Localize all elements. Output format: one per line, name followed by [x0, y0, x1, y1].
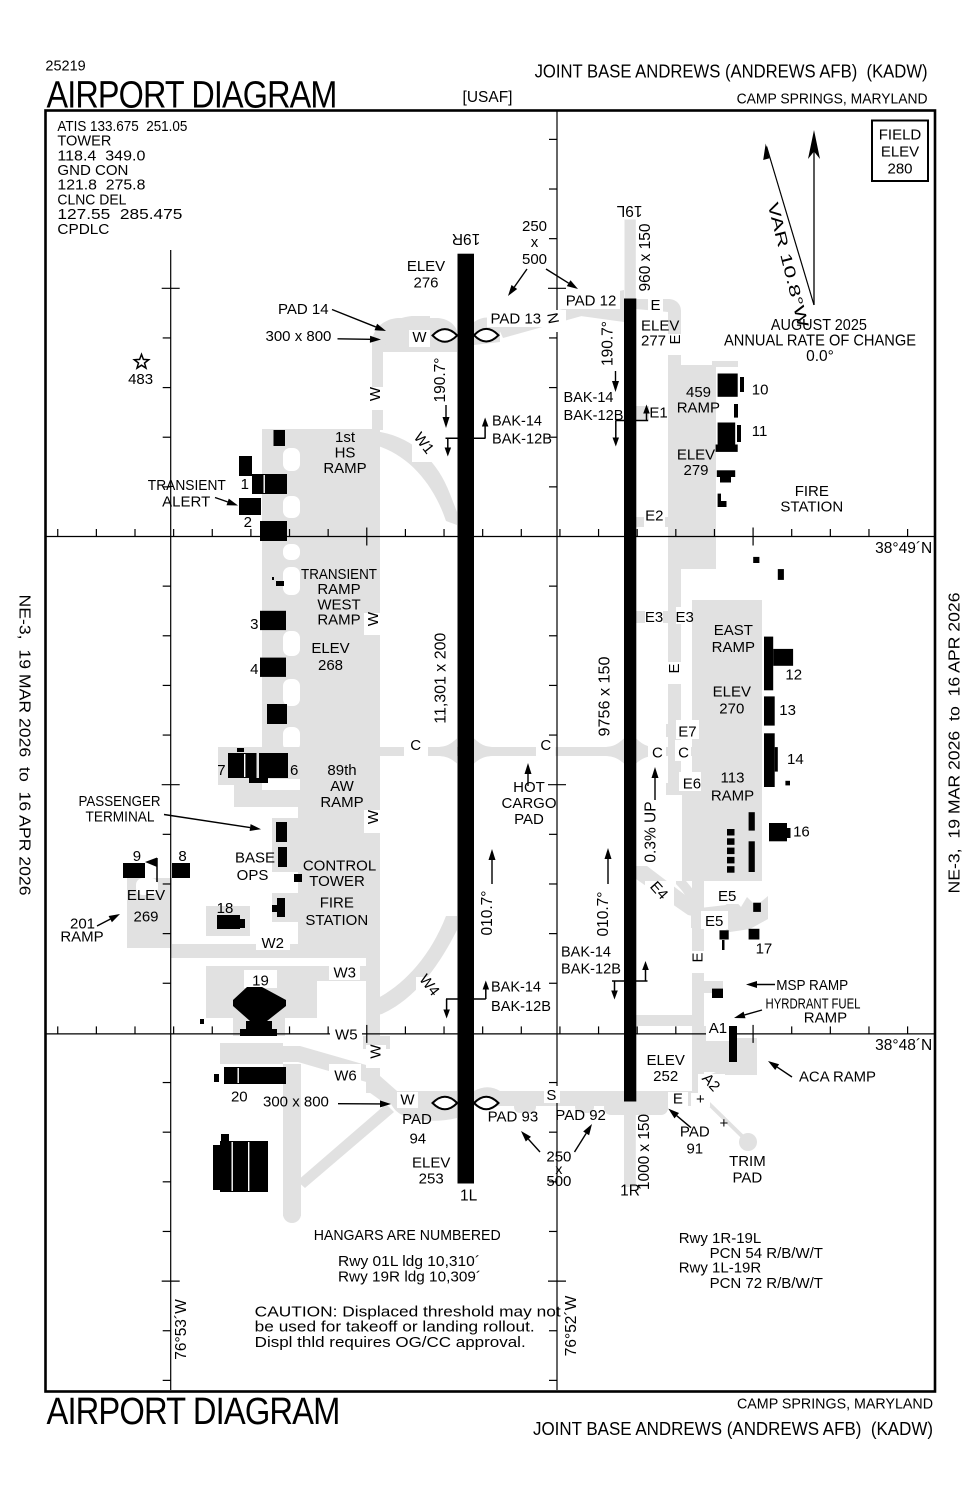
svg-text:17: 17 [756, 940, 773, 957]
svg-text:NE-3, 19 MAR 2026 to 16 APR: NE-3, 19 MAR 2026 to 16 APR 2026 [16, 595, 33, 896]
svg-text:GND CON: GND CON [57, 163, 128, 179]
svg-text:MSP RAMP: MSP RAMP [776, 977, 848, 994]
svg-text:x: x [531, 234, 539, 251]
svg-text:94: 94 [409, 1130, 426, 1147]
svg-text:13: 13 [779, 702, 796, 719]
svg-text:W: W [412, 329, 427, 346]
svg-text:279: 279 [683, 462, 708, 479]
svg-text:PAD: PAD [402, 1111, 432, 1128]
svg-text:19R: 19R [452, 230, 480, 247]
svg-text:HANGARS ARE NUMBERED: HANGARS ARE NUMBERED [314, 1227, 501, 1244]
svg-text:16: 16 [793, 824, 810, 841]
svg-text:FIRE: FIRE [320, 894, 354, 911]
svg-text:118.4 349.0: 118.4 349.0 [57, 148, 145, 164]
svg-text:OPS: OPS [237, 867, 269, 884]
svg-text:E7: E7 [678, 723, 696, 740]
svg-text:RAMP: RAMP [677, 400, 720, 417]
svg-text:CARGO: CARGO [501, 795, 556, 812]
svg-text:89th: 89th [327, 762, 356, 779]
svg-text:11: 11 [752, 423, 768, 440]
svg-text:277: 277 [641, 332, 666, 349]
svg-text:190.7°: 190.7° [432, 358, 449, 403]
svg-text:91: 91 [686, 1141, 703, 1158]
svg-text:300 x 800: 300 x 800 [263, 1093, 329, 1110]
svg-text:0.0°: 0.0° [806, 348, 834, 365]
svg-text:A1: A1 [709, 1020, 727, 1037]
svg-text:TERMINAL: TERMINAL [86, 808, 155, 825]
svg-text:9756 x 150: 9756 x 150 [597, 656, 614, 736]
svg-text:190.7°: 190.7° [600, 321, 617, 366]
svg-text:1: 1 [241, 476, 249, 493]
svg-text:BAK-12B: BAK-12B [564, 407, 624, 424]
svg-text:RAMP: RAMP [60, 929, 103, 946]
svg-text:BAK-14: BAK-14 [564, 389, 614, 406]
svg-text:ELEV: ELEV [677, 446, 715, 463]
svg-text:BAK-14: BAK-14 [561, 943, 611, 960]
svg-text:76°52´W: 76°52´W [563, 1295, 580, 1356]
svg-text:PAD 12: PAD 12 [566, 293, 617, 310]
svg-text:BASE: BASE [235, 850, 275, 867]
svg-text:Rwy 1L-19R: Rwy 1L-19R [679, 1260, 762, 1277]
svg-text:ATIS 133.675 251.05: ATIS 133.675 251.05 [57, 119, 187, 135]
svg-text:1000 x 150: 1000 x 150 [636, 1114, 653, 1190]
svg-text:RAMP: RAMP [804, 1009, 847, 1026]
svg-text:250: 250 [522, 218, 547, 235]
svg-text:E: E [666, 663, 683, 673]
svg-text:11,301 x 200: 11,301 x 200 [433, 632, 450, 723]
svg-text:W5: W5 [335, 1026, 358, 1043]
svg-text:RAMP: RAMP [320, 794, 363, 811]
svg-text:269: 269 [133, 909, 158, 926]
svg-text:CPDLC: CPDLC [57, 222, 109, 238]
svg-text:+: + [696, 1091, 705, 1108]
svg-text:10: 10 [752, 381, 769, 398]
svg-text:E: E [673, 1090, 683, 1107]
svg-text:280: 280 [887, 161, 912, 178]
svg-text:+: + [720, 1115, 729, 1132]
svg-text:12: 12 [785, 667, 802, 684]
svg-text:BAK-12B: BAK-12B [491, 998, 551, 1015]
svg-text:BAK-14: BAK-14 [491, 979, 541, 996]
svg-text:RAMP: RAMP [317, 581, 360, 598]
svg-text:AIRPORT DIAGRAM: AIRPORT DIAGRAM [47, 1391, 340, 1433]
svg-text:C: C [540, 737, 551, 754]
svg-text:W: W [368, 1044, 385, 1059]
svg-text:38°48´N: 38°48´N [875, 1037, 932, 1054]
svg-text:CAMP SPRINGS, MARYLAND: CAMP SPRINGS, MARYLAND [737, 1395, 933, 1412]
svg-text:CLNC DEL: CLNC DEL [57, 192, 126, 208]
svg-text:HS: HS [335, 445, 356, 462]
svg-text:C: C [678, 745, 689, 762]
svg-text:RAMP: RAMP [711, 788, 754, 805]
svg-text:PAD: PAD [733, 1169, 763, 1186]
svg-text:JOINT BASE ANDREWS (ANDREWS AF: JOINT BASE ANDREWS (ANDREWS AFB) (KADW) [535, 61, 928, 81]
svg-text:BAK-14: BAK-14 [492, 413, 542, 430]
svg-text:TRANSIENT: TRANSIENT [148, 477, 226, 494]
svg-text:76°53´W: 76°53´W [173, 1299, 190, 1360]
svg-text:Rwy 19R ldg 10,309´: Rwy 19R ldg 10,309´ [338, 1268, 481, 1285]
svg-text:121.8 275.8: 121.8 275.8 [57, 178, 145, 194]
svg-text:268: 268 [318, 657, 343, 674]
svg-text:CONTROL: CONTROL [303, 858, 376, 875]
svg-text:Displ thld requires OG/CC appr: Displ thld requires OG/CC approval. [255, 1334, 526, 1351]
svg-text:25219: 25219 [45, 59, 85, 75]
svg-text:PAD 93: PAD 93 [488, 1108, 539, 1125]
svg-text:252: 252 [653, 1068, 678, 1085]
svg-text:010.7°: 010.7° [479, 891, 496, 936]
svg-text:PAD 92: PAD 92 [555, 1107, 606, 1124]
svg-text:127.55 285.475: 127.55 285.475 [57, 207, 182, 223]
svg-text:ELEV: ELEV [311, 640, 349, 657]
svg-text:E1: E1 [649, 405, 667, 422]
svg-text:E: E [690, 952, 707, 962]
svg-text:EAST: EAST [714, 622, 753, 639]
svg-text:270: 270 [719, 700, 744, 717]
svg-text:PAD: PAD [514, 811, 544, 828]
svg-text:253: 253 [419, 1170, 444, 1187]
svg-text:PAD 13: PAD 13 [491, 311, 542, 328]
svg-text:38°49´N: 38°49´N [875, 540, 932, 557]
svg-text:276: 276 [413, 275, 438, 292]
svg-text:HOT: HOT [513, 779, 545, 796]
svg-text:[USAF]: [USAF] [463, 89, 513, 106]
svg-text:PAD 14: PAD 14 [278, 301, 329, 318]
svg-text:500: 500 [546, 1173, 571, 1190]
svg-text:ELEV: ELEV [412, 1155, 450, 1172]
svg-text:RAMP: RAMP [323, 460, 366, 477]
svg-text:1L: 1L [460, 1188, 478, 1205]
svg-text:BAK-12B: BAK-12B [561, 960, 621, 977]
svg-text:W6: W6 [334, 1067, 357, 1084]
svg-text:PASSENGER: PASSENGER [79, 793, 161, 810]
svg-text:E6: E6 [683, 776, 701, 793]
svg-text:300 x 800: 300 x 800 [266, 328, 332, 345]
svg-text:W: W [400, 1092, 415, 1109]
svg-text:W: W [365, 809, 382, 824]
svg-text:PAD: PAD [680, 1123, 710, 1140]
svg-text:ANNUAL RATE OF CHANGE: ANNUAL RATE OF CHANGE [724, 333, 916, 350]
svg-text:ELEV: ELEV [407, 258, 445, 275]
svg-text:4: 4 [250, 661, 258, 678]
svg-text:C: C [652, 745, 663, 762]
svg-text:STATION: STATION [305, 912, 368, 929]
svg-text:AUGUST 2025: AUGUST 2025 [771, 317, 867, 334]
svg-text:CAMP SPRINGS, MARYLAND: CAMP SPRINGS, MARYLAND [737, 91, 928, 108]
svg-text:FIELD: FIELD [879, 127, 922, 144]
svg-text:TRIM: TRIM [729, 1153, 766, 1170]
svg-text:459: 459 [686, 384, 711, 401]
svg-text:W2: W2 [261, 935, 284, 952]
svg-text:ACA RAMP: ACA RAMP [799, 1069, 876, 1086]
svg-text:20: 20 [231, 1088, 248, 1105]
svg-text:19L: 19L [616, 202, 642, 219]
svg-text:AW: AW [330, 778, 354, 795]
svg-text:E: E [650, 297, 660, 314]
svg-text:ELEV: ELEV [647, 1052, 685, 1069]
svg-text:W3: W3 [333, 964, 356, 981]
svg-text:ELEV: ELEV [127, 887, 165, 904]
svg-text:W: W [365, 611, 382, 626]
svg-text:S: S [546, 1087, 556, 1104]
svg-text:960 x 150: 960 x 150 [637, 223, 654, 291]
svg-text:483: 483 [128, 371, 153, 388]
svg-text:BAK-12B: BAK-12B [492, 431, 552, 448]
svg-text:E: E [667, 334, 684, 344]
svg-text:E5: E5 [718, 888, 736, 905]
svg-text:ALERT: ALERT [162, 493, 210, 510]
svg-text:14: 14 [787, 751, 804, 768]
svg-text:0.3% UP: 0.3% UP [643, 801, 660, 862]
svg-text:JOINT BASE ANDREWS (ANDREWS AF: JOINT BASE ANDREWS (ANDREWS AFB) (KADW) [533, 1419, 933, 1439]
svg-text:18: 18 [217, 900, 234, 917]
svg-text:3: 3 [250, 616, 258, 633]
svg-text:RAMP: RAMP [317, 612, 360, 629]
svg-text:500: 500 [522, 251, 547, 268]
svg-text:W: W [367, 386, 384, 401]
svg-text:E2: E2 [645, 508, 663, 525]
svg-text:6: 6 [290, 762, 298, 779]
svg-text:TOWER: TOWER [57, 134, 111, 150]
svg-text:E3: E3 [676, 609, 694, 626]
svg-text:RAMP: RAMP [712, 639, 755, 656]
svg-text:8: 8 [178, 848, 186, 865]
svg-text:NE-3, 19 MAR 2026 to 16 APR: NE-3, 19 MAR 2026 to 16 APR 2026 [947, 592, 964, 893]
svg-text:STATION: STATION [780, 499, 843, 516]
svg-text:1st: 1st [335, 429, 356, 446]
svg-text:ELEV: ELEV [881, 144, 919, 161]
svg-text:FIRE: FIRE [795, 483, 829, 500]
svg-text:be used for takeoff or landing: be used for takeoff or landing rollout. [255, 1318, 535, 1335]
svg-text:7: 7 [217, 762, 225, 779]
svg-text:PCN 72 R/B/W/T: PCN 72 R/B/W/T [710, 1275, 823, 1292]
svg-text:113: 113 [721, 769, 745, 786]
svg-text:010.7°: 010.7° [595, 892, 612, 937]
svg-text:C: C [410, 737, 421, 754]
svg-text:TOWER: TOWER [309, 873, 365, 890]
svg-text:ELEV: ELEV [713, 683, 751, 700]
svg-text:2: 2 [244, 514, 252, 531]
svg-text:9: 9 [133, 848, 141, 865]
svg-text:19: 19 [252, 972, 269, 989]
svg-text:E5: E5 [705, 913, 723, 930]
svg-text:E3: E3 [645, 609, 663, 626]
